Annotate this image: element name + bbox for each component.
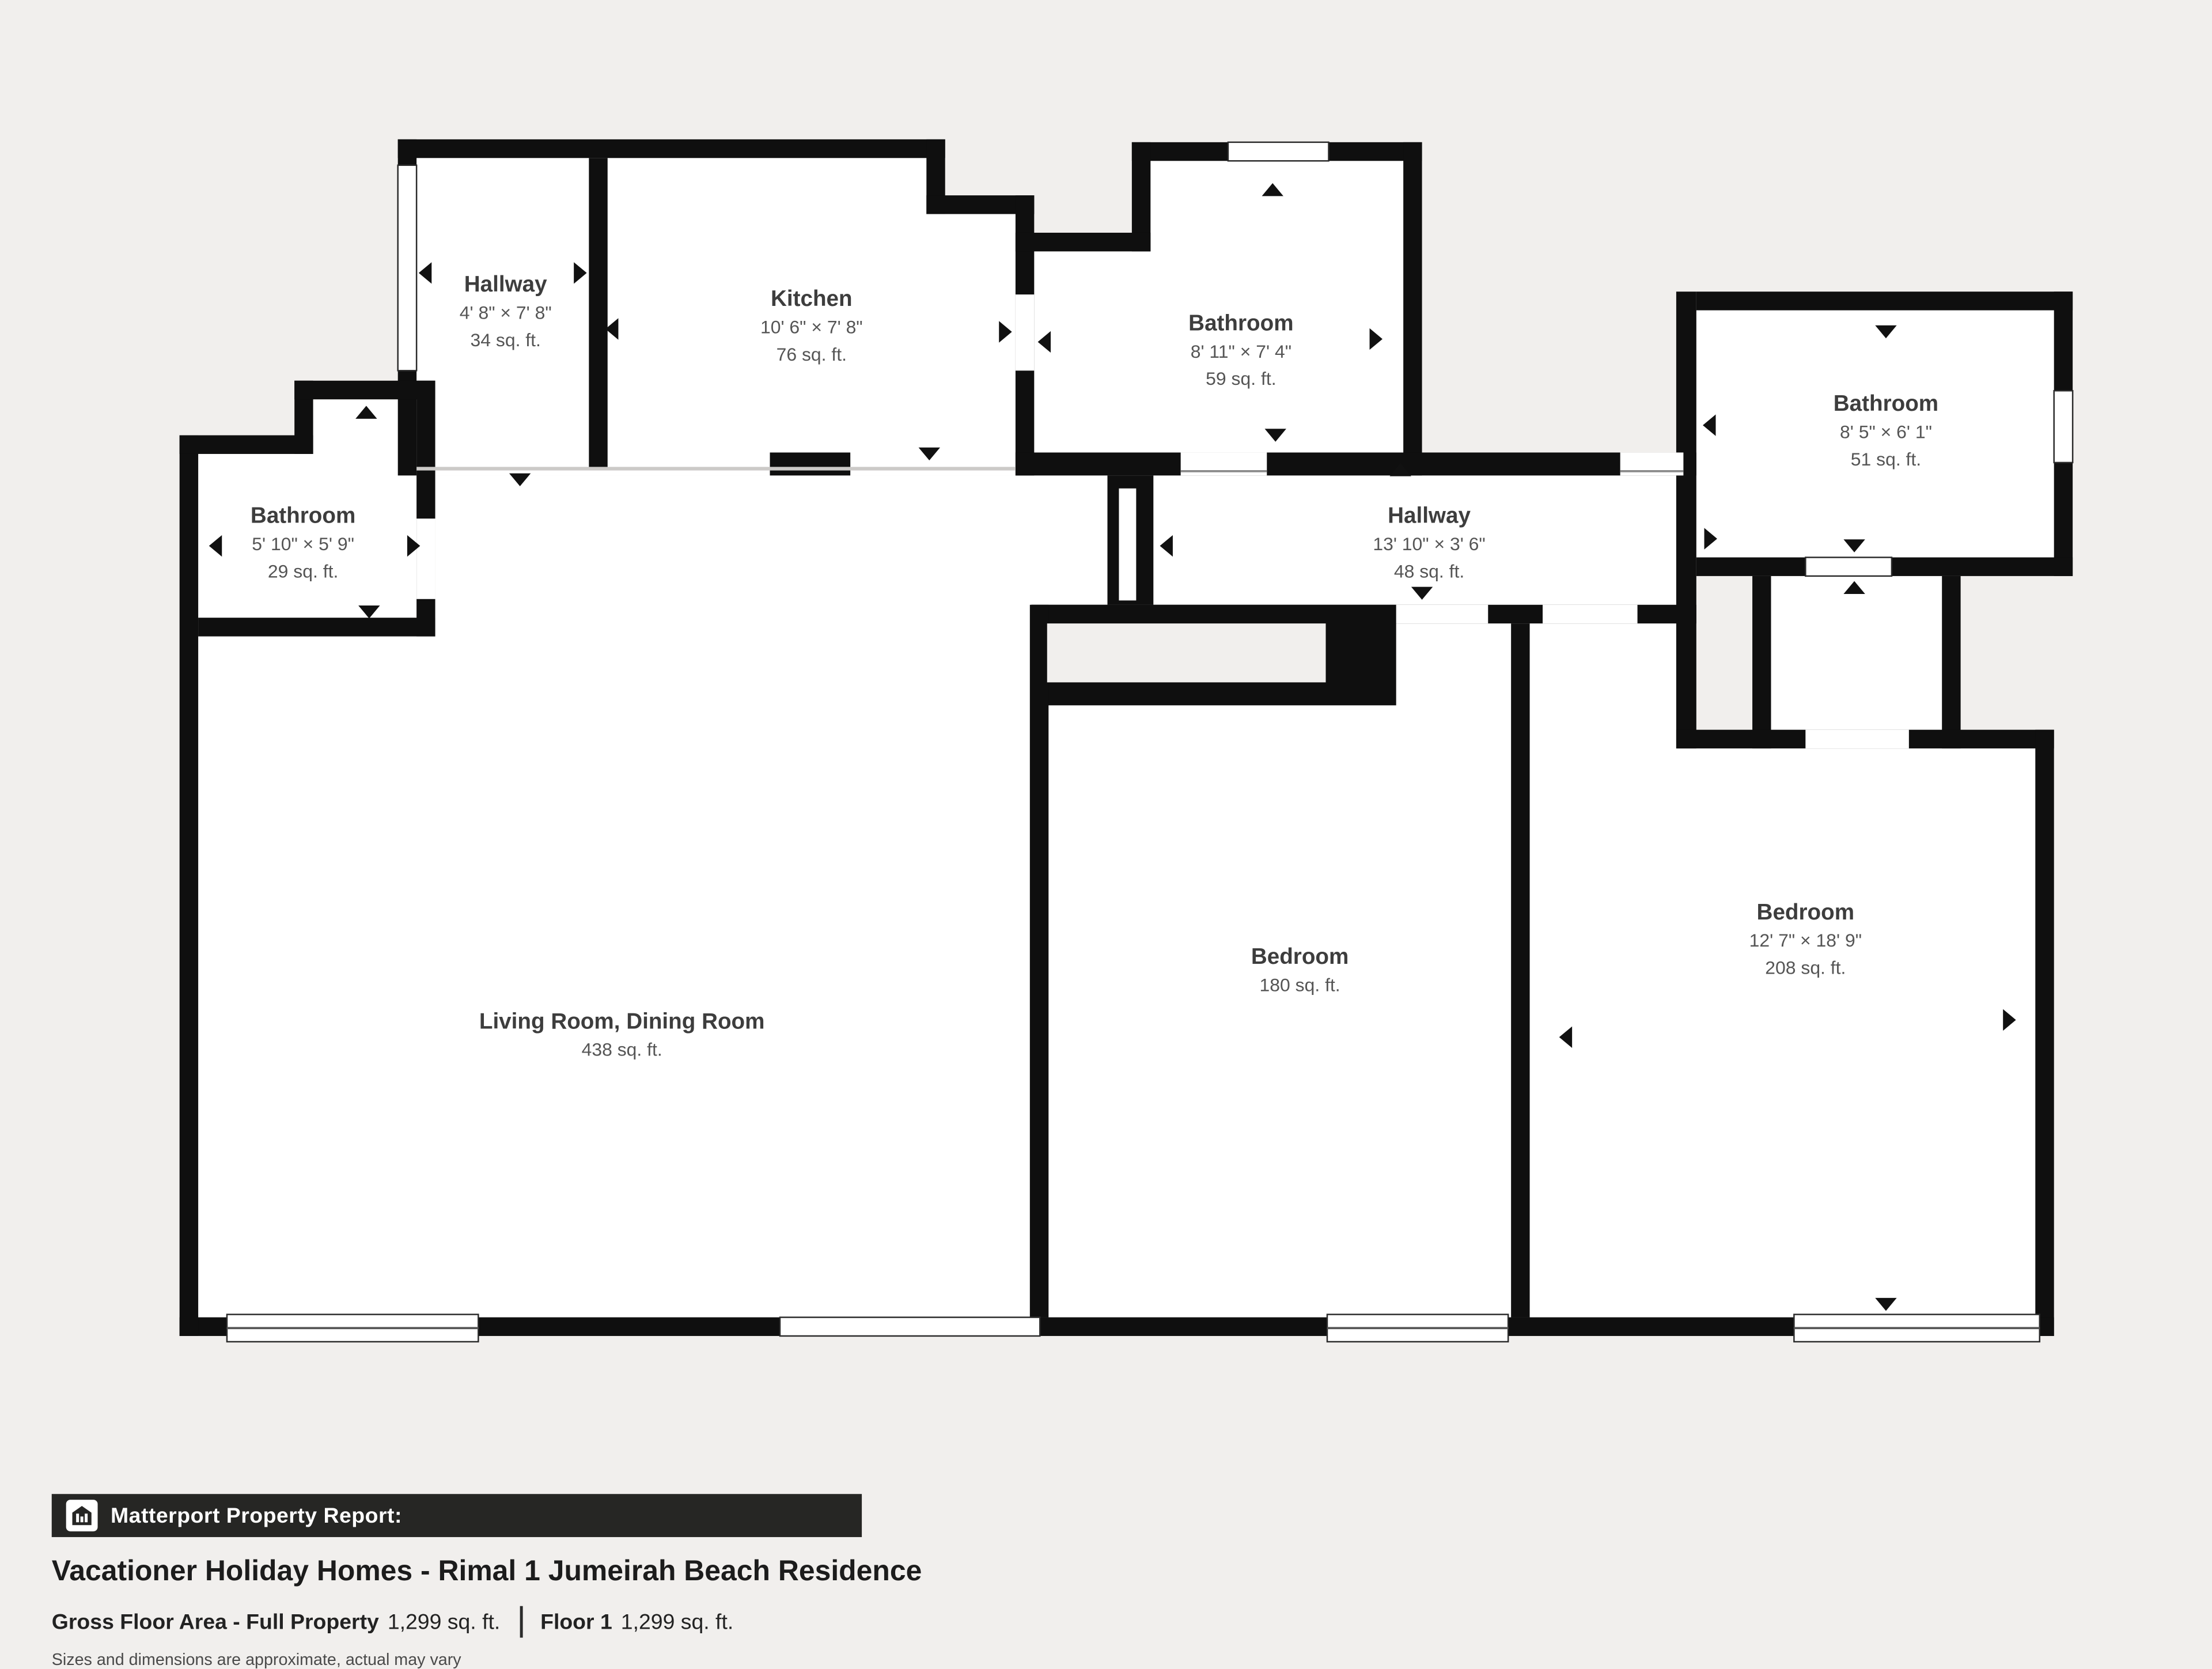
room-label: Hallway4' 8" × 7' 8"34 sq. ft. <box>460 272 552 350</box>
door-opening <box>1016 294 1034 370</box>
door-opening <box>1805 730 1909 748</box>
door-opening <box>1119 489 1136 600</box>
door-opening <box>1805 557 1892 576</box>
floor1-value: 1,299 sq. ft. <box>621 1610 733 1634</box>
svg-text:59 sq. ft.: 59 sq. ft. <box>1206 368 1276 389</box>
svg-text:76 sq. ft.: 76 sq. ft. <box>777 344 847 365</box>
matterport-logo-icon <box>66 1500 98 1531</box>
svg-text:Bathroom: Bathroom <box>251 504 355 528</box>
floor-area-stats: Gross Floor Area - Full Property 1,299 s… <box>52 1606 1632 1638</box>
svg-text:208 sq. ft.: 208 sq. ft. <box>1765 958 1846 978</box>
svg-text:Living Room, Dining Room: Living Room, Dining Room <box>479 1009 765 1034</box>
gross-floor-area-value: 1,299 sq. ft. <box>388 1610 500 1634</box>
gross-floor-area-label: Gross Floor Area - Full Property <box>52 1610 379 1634</box>
matterport-floorplan-page: Hallway4' 8" × 7' 8"34 sq. ft.Kitchen10'… <box>0 0 2212 1659</box>
svg-text:4' 8" × 7' 8": 4' 8" × 7' 8" <box>460 302 552 323</box>
svg-text:29 sq. ft.: 29 sq. ft. <box>268 561 338 581</box>
floor-closet <box>1771 576 1942 730</box>
floor1-label: Floor 1 <box>540 1610 612 1634</box>
svg-text:51 sq. ft.: 51 sq. ft. <box>1851 449 1921 470</box>
svg-text:12' 7" × 18' 9": 12' 7" × 18' 9" <box>1749 930 1862 951</box>
svg-text:48 sq. ft.: 48 sq. ft. <box>1394 561 1464 581</box>
floor-bedroom-180 <box>1048 623 1511 1317</box>
svg-text:Hallway: Hallway <box>1388 504 1471 528</box>
svg-text:180 sq. ft.: 180 sq. ft. <box>1260 975 1340 996</box>
svg-text:Bedroom: Bedroom <box>1757 900 1855 925</box>
report-bar: Matterport Property Report: <box>52 1494 862 1537</box>
svg-text:Bathroom: Bathroom <box>1188 311 1293 336</box>
svg-text:Hallway: Hallway <box>464 272 547 297</box>
door-opening <box>1396 605 1488 623</box>
floor-plan: Hallway4' 8" × 7' 8"34 sq. ft.Kitchen10'… <box>0 0 2212 1659</box>
svg-text:Bathroom: Bathroom <box>1834 391 1938 416</box>
svg-text:10' 6" × 7' 8": 10' 6" × 7' 8" <box>760 316 863 337</box>
svg-text:34 sq. ft.: 34 sq. ft. <box>471 330 541 350</box>
window <box>2054 391 2073 463</box>
svg-text:438 sq. ft.: 438 sq. ft. <box>582 1039 662 1060</box>
door-opening <box>1543 605 1638 623</box>
svg-text:5' 10" × 5' 9": 5' 10" × 5' 9" <box>252 533 354 554</box>
window <box>398 165 416 371</box>
property-title: Vacationer Holiday Homes - Rimal 1 Jumei… <box>52 1556 1632 1588</box>
svg-text:8' 11" × 7' 4": 8' 11" × 7' 4" <box>1191 341 1291 362</box>
door-opening <box>780 1318 1040 1336</box>
threshold-line <box>416 467 1016 470</box>
svg-text:8' 5" × 6' 1": 8' 5" × 6' 1" <box>1840 422 1932 442</box>
report-bar-label: Matterport Property Report: <box>111 1503 402 1527</box>
exterior-lightwell <box>1047 623 1326 682</box>
report-footer: Matterport Property Report: Vacationer H… <box>52 1494 1632 1669</box>
disclaimer-note: Sizes and dimensions are approximate, ac… <box>52 1652 1632 1669</box>
svg-text:Kitchen: Kitchen <box>771 286 853 311</box>
svg-text:13' 10" × 3' 6": 13' 10" × 3' 6" <box>1373 533 1485 554</box>
svg-text:Bedroom: Bedroom <box>1251 944 1349 969</box>
door-opening <box>416 519 435 599</box>
stats-divider <box>520 1606 523 1638</box>
window <box>1228 142 1329 161</box>
room-label: Bedroom12' 7" × 18' 9"208 sq. ft. <box>1749 900 1862 978</box>
